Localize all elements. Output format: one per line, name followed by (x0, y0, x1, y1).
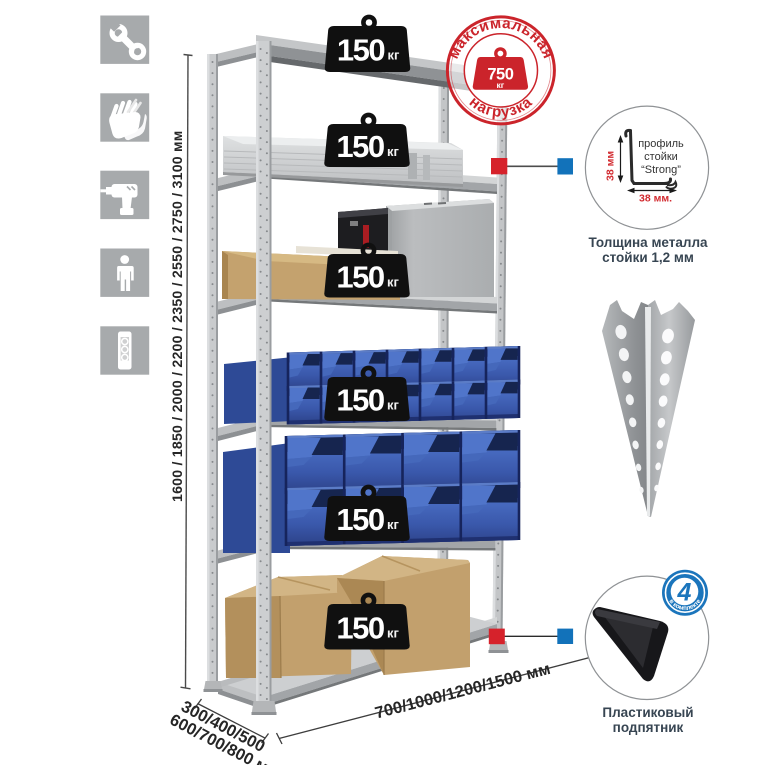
svg-text:кг: кг (387, 274, 400, 289)
svg-text:150: 150 (336, 129, 383, 164)
svg-text:150: 150 (336, 259, 383, 294)
svg-text:150: 150 (337, 33, 384, 68)
svg-text:кг: кг (387, 625, 400, 640)
svg-text:подпятник: подпятник (613, 720, 684, 735)
svg-text:1600 / 1850 / 2000 / 2200 / 23: 1600 / 1850 / 2000 / 2200 / 2350 / 2550 … (170, 131, 186, 502)
svg-text:38 мм.: 38 мм. (639, 193, 672, 205)
svg-text:профиль: профиль (638, 138, 684, 150)
svg-text:кг: кг (388, 48, 401, 63)
svg-text:150: 150 (336, 502, 383, 537)
svg-text:Пластиковый: Пластиковый (602, 705, 693, 720)
svg-text:кг: кг (387, 398, 400, 413)
svg-text:Толщина металла: Толщина металла (588, 235, 708, 250)
svg-text:кг: кг (387, 144, 400, 159)
svg-text:150: 150 (336, 610, 383, 645)
svg-text:кг: кг (497, 80, 505, 90)
svg-text:кг: кг (387, 517, 400, 532)
svg-text:150: 150 (336, 383, 383, 418)
svg-text:стойки: стойки (644, 151, 678, 163)
svg-text:4: 4 (677, 579, 692, 607)
svg-text:стойки 1,2 мм: стойки 1,2 мм (602, 250, 694, 265)
svg-text:38 мм: 38 мм (605, 151, 617, 181)
svg-text:“Strong”: “Strong” (641, 164, 681, 176)
